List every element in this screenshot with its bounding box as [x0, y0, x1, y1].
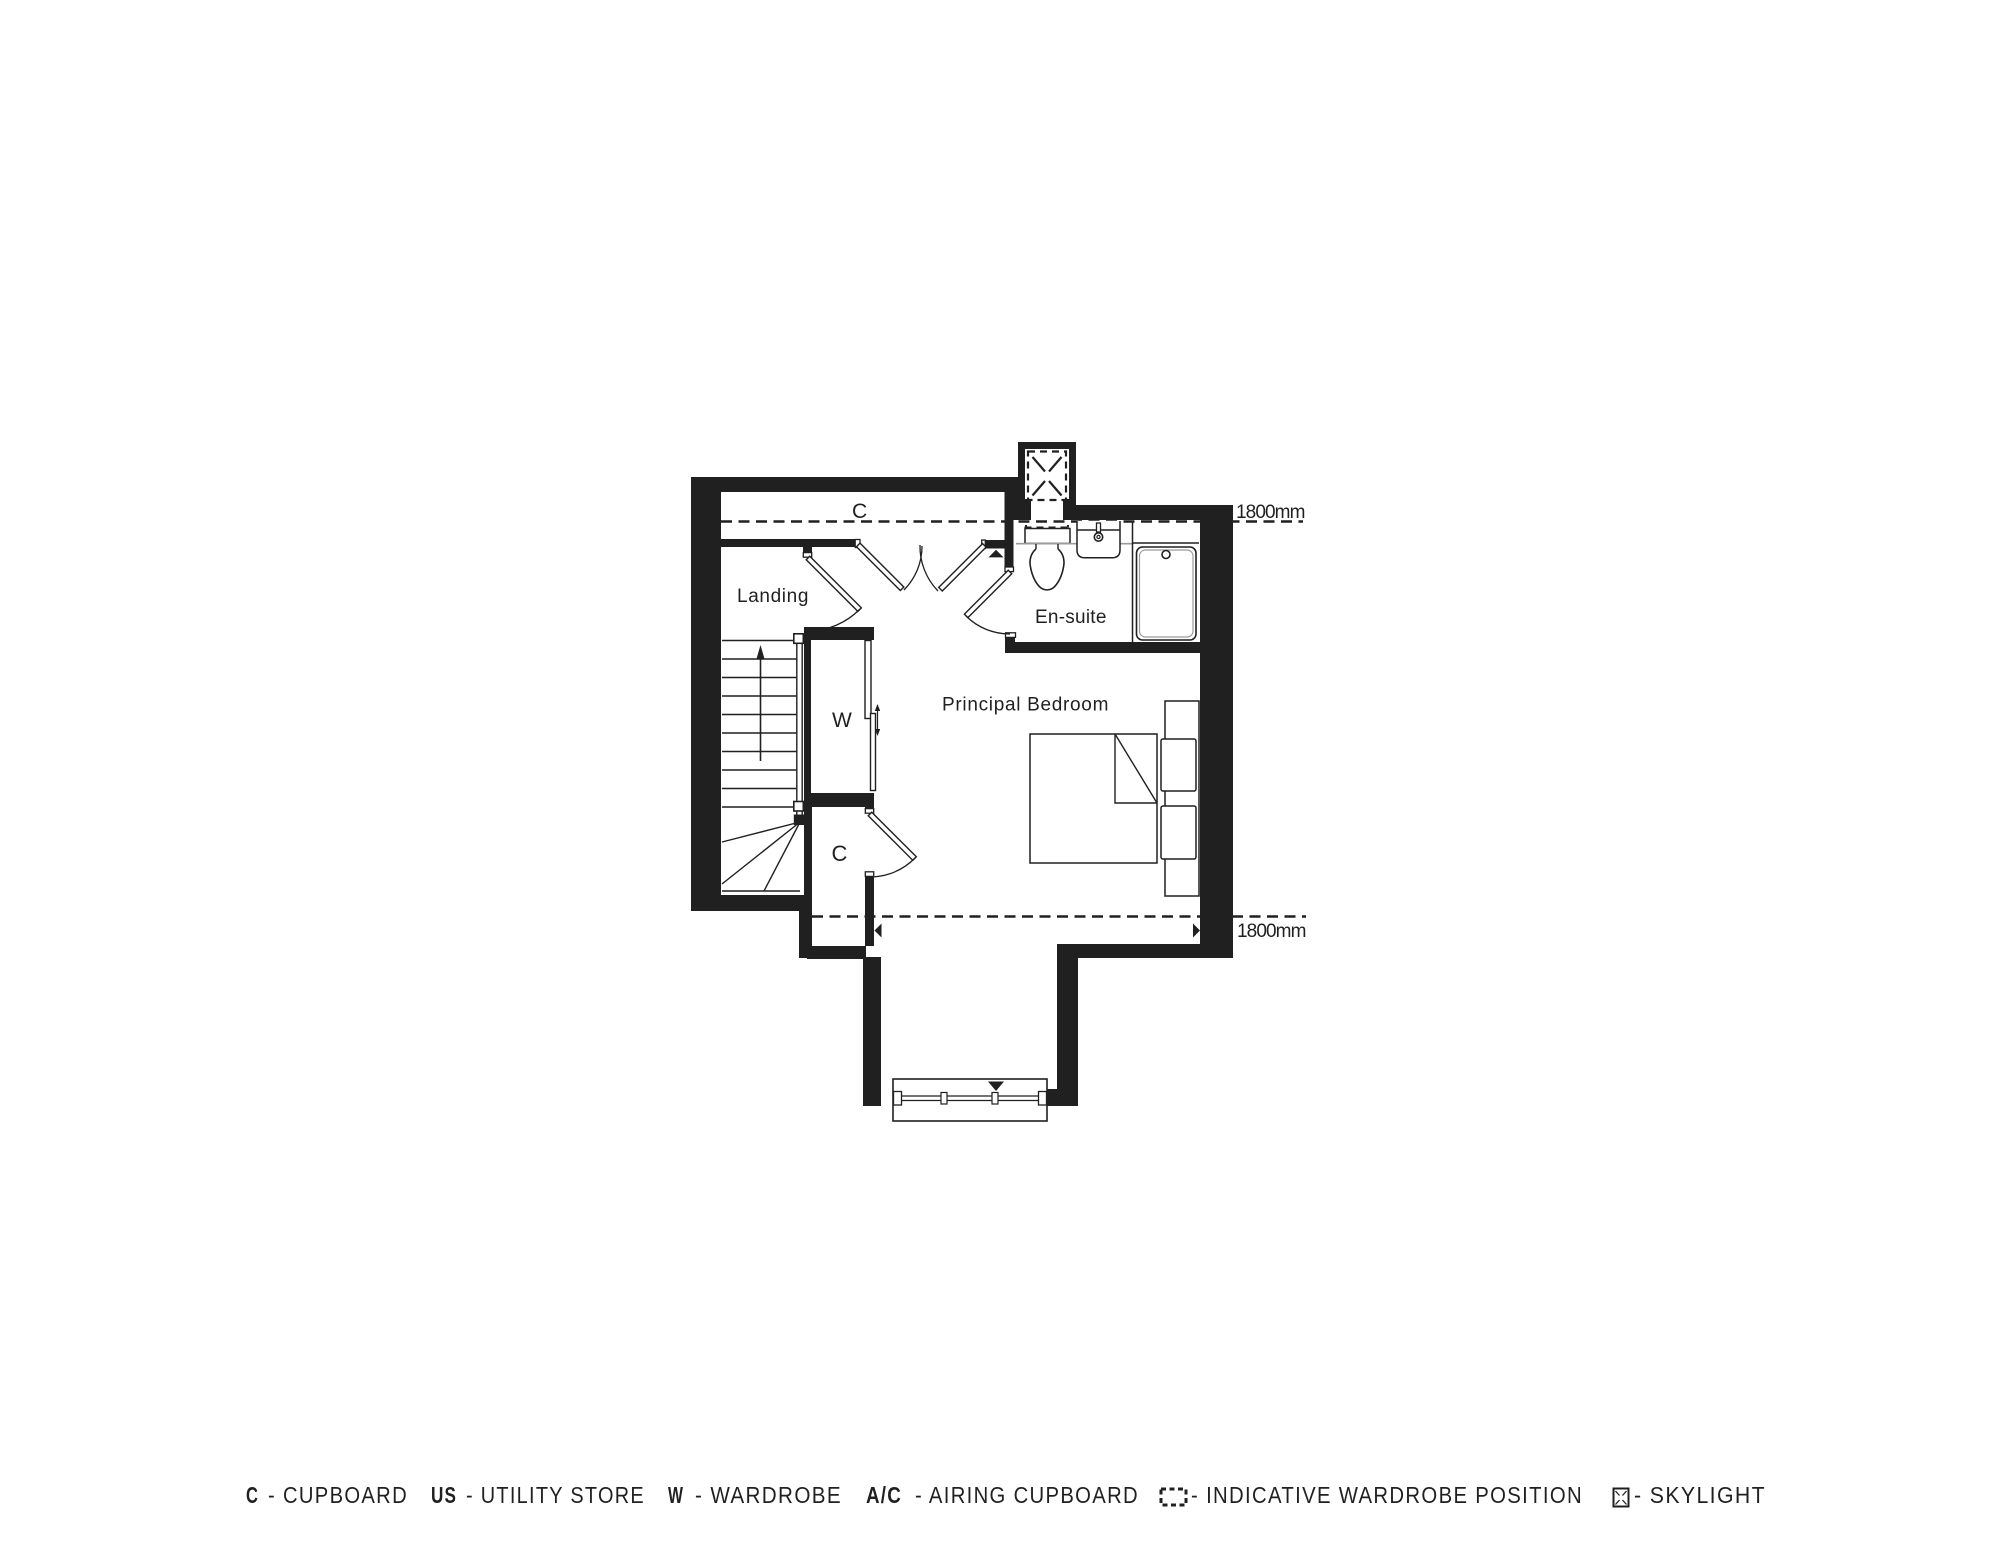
- svg-text:US: US: [431, 1482, 457, 1508]
- svg-text:C: C: [246, 1482, 259, 1508]
- svg-text:Landing: Landing: [737, 586, 809, 607]
- svg-text:- SKYLIGHT: - SKYLIGHT: [1634, 1482, 1766, 1508]
- svg-text:- WARDROBE: - WARDROBE: [695, 1482, 842, 1508]
- svg-text:- UTILITY STORE: - UTILITY STORE: [466, 1482, 645, 1508]
- svg-text:1800mm: 1800mm: [1237, 921, 1307, 942]
- svg-text:En-suite: En-suite: [1035, 607, 1107, 628]
- svg-text:- INDICATIVE WARDROBE POSITION: - INDICATIVE WARDROBE POSITION: [1191, 1482, 1583, 1508]
- svg-text:C: C: [852, 500, 868, 523]
- svg-text:W: W: [668, 1482, 684, 1508]
- svg-text:W: W: [832, 709, 852, 732]
- svg-text:C: C: [832, 841, 849, 866]
- svg-text:- CUPBOARD: - CUPBOARD: [268, 1482, 408, 1508]
- svg-text:Principal Bedroom: Principal Bedroom: [942, 695, 1109, 716]
- svg-text:- AIRING CUPBOARD: - AIRING CUPBOARD: [915, 1482, 1139, 1508]
- svg-text:A/C: A/C: [866, 1482, 902, 1508]
- svg-text:1800mm: 1800mm: [1236, 502, 1306, 523]
